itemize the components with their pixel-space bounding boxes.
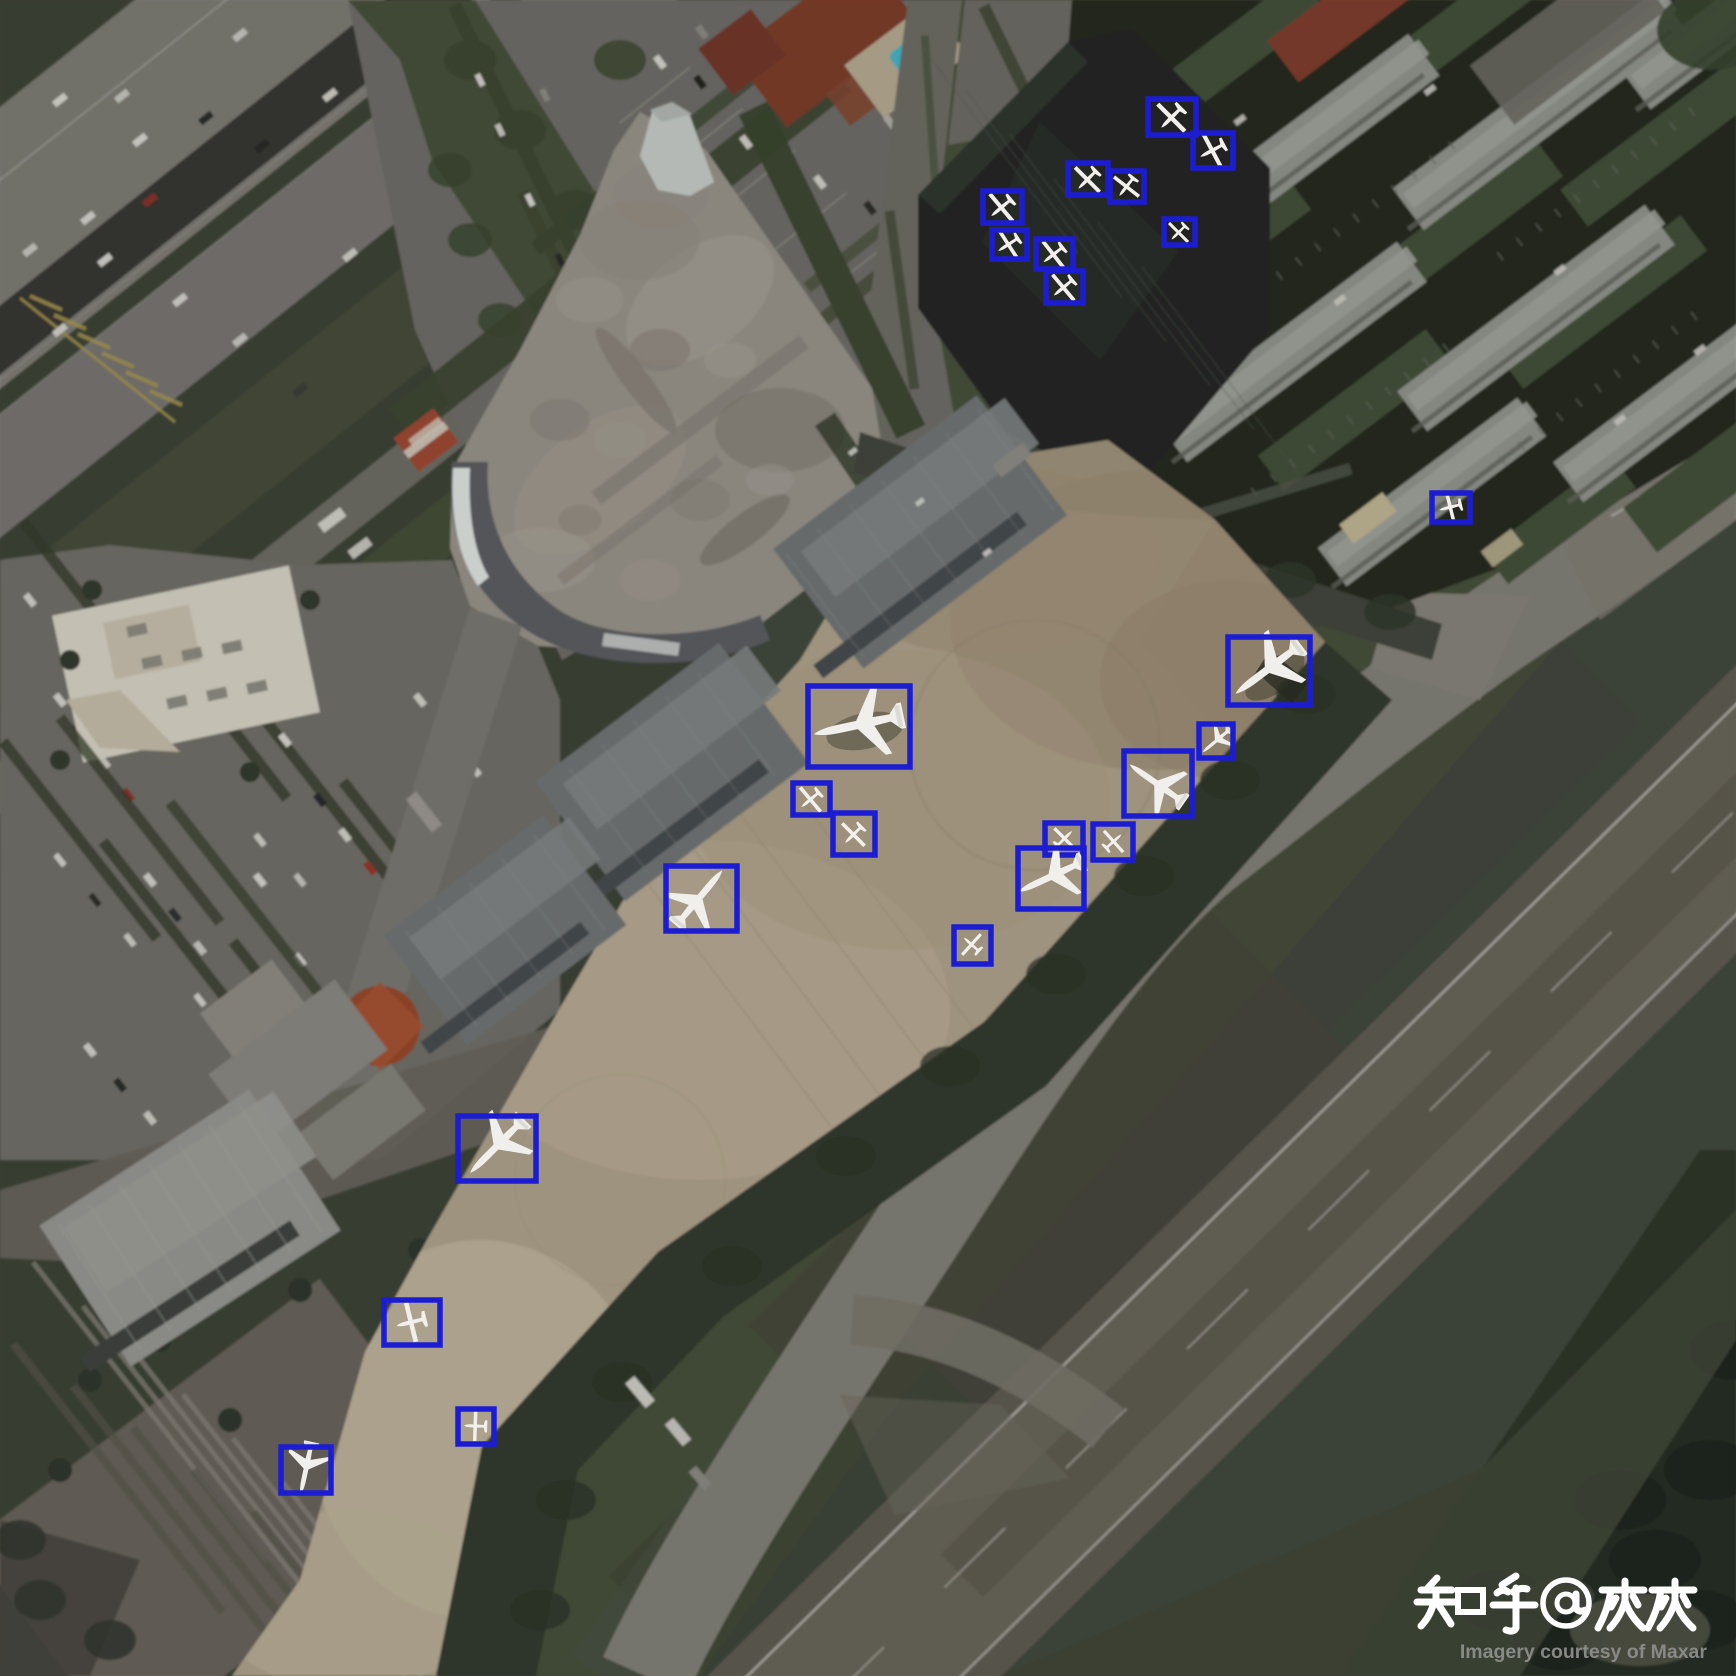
svg-text:Imagery courtesy of Maxar: Imagery courtesy of Maxar	[1460, 1641, 1708, 1663]
